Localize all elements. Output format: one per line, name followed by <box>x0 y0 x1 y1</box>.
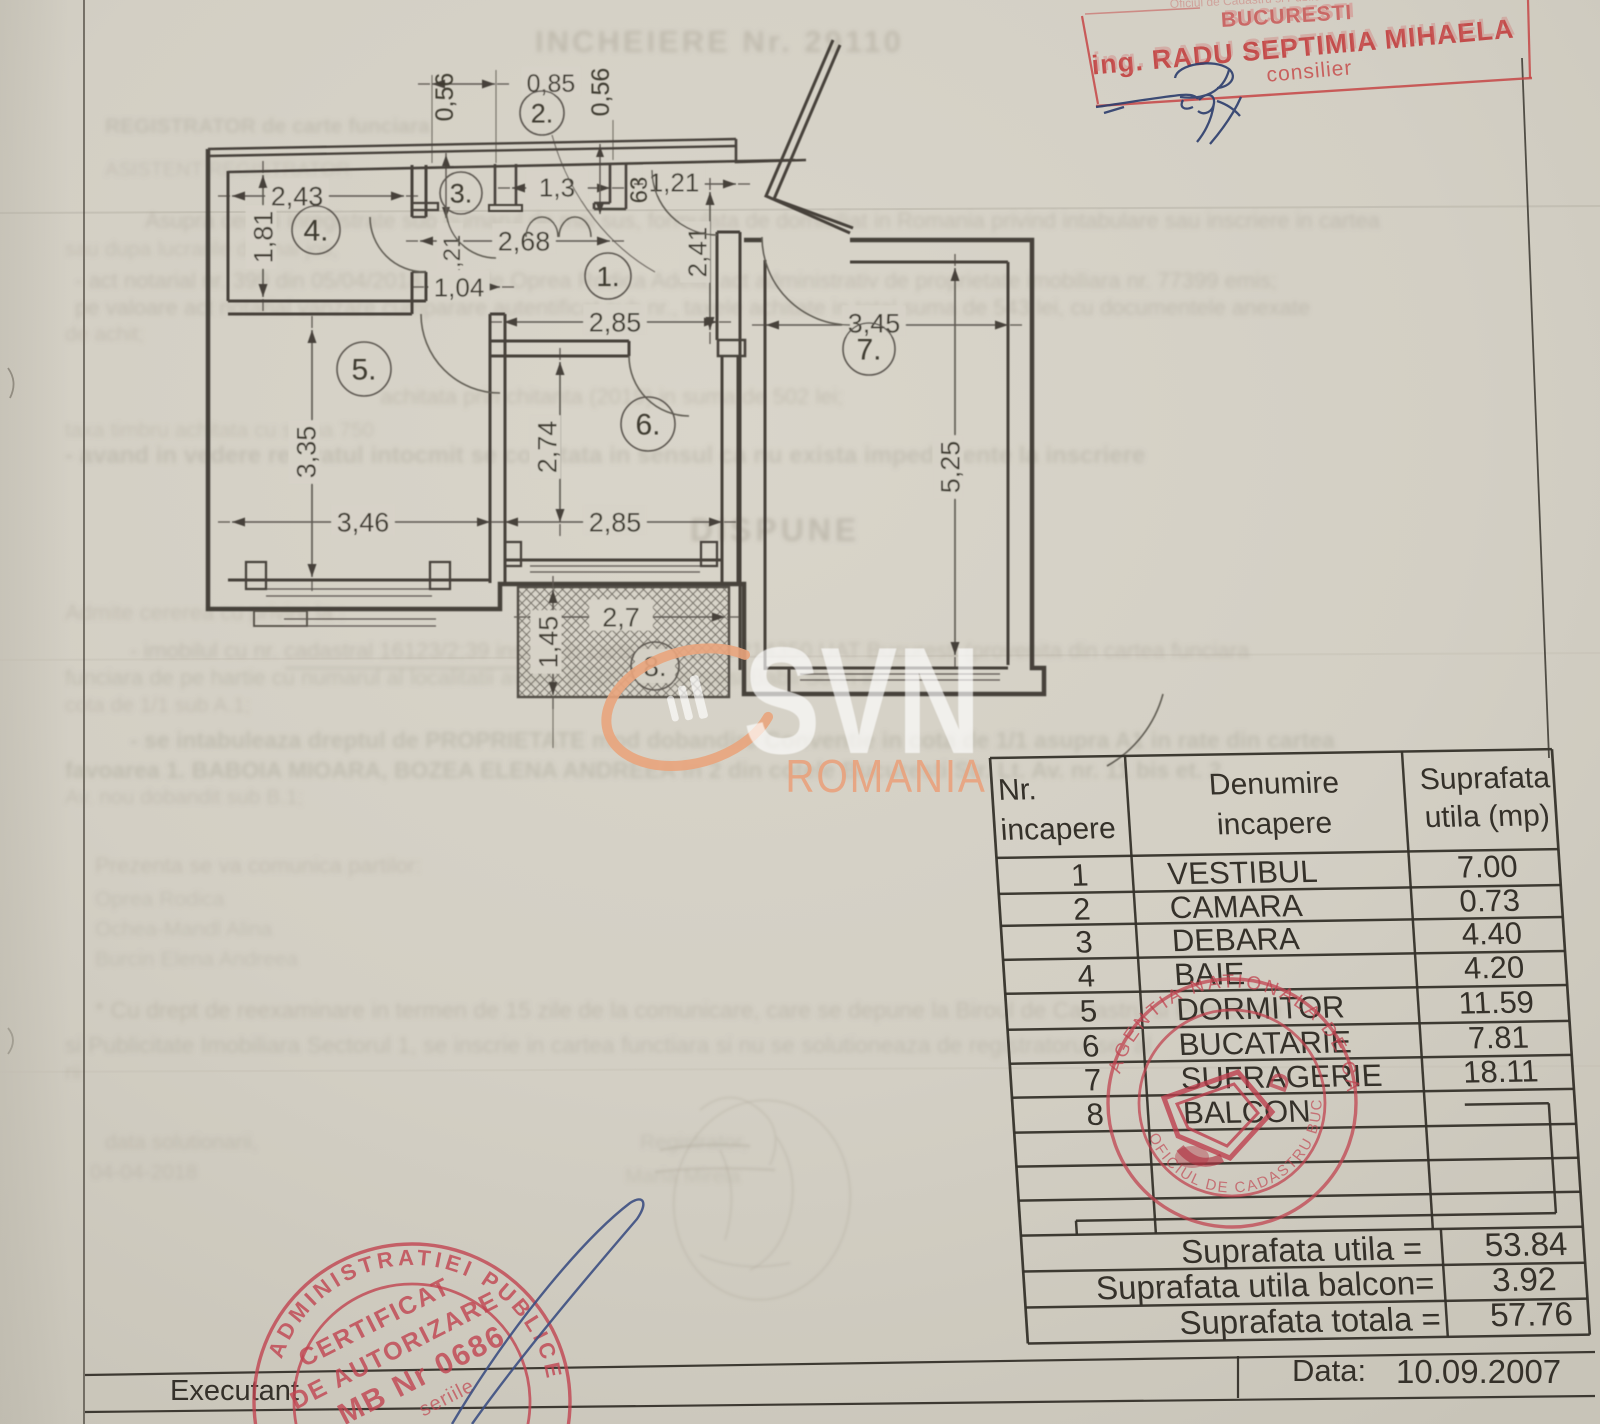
svg-text:0.73: 0.73 <box>1458 883 1521 919</box>
svg-text:3: 3 <box>1074 924 1093 959</box>
svg-text:6.: 6. <box>635 409 660 442</box>
svg-text:de achit;: de achit; <box>65 323 144 346</box>
svg-text:5.: 5. <box>351 354 376 387</box>
svg-text:DEBARA: DEBARA <box>1171 921 1301 958</box>
svg-text:Denumire: Denumire <box>1208 767 1340 802</box>
svg-text:2.: 2. <box>531 98 554 128</box>
svg-text:REGISTRATOR de carte funciara: REGISTRATOR de carte funciara <box>105 115 430 138</box>
svg-text:- avand in vedere referatul in: - avand in vedere referatul intocmit se … <box>65 442 1145 469</box>
svg-text:pe valoare act notarial vanzar: pe valoare act notarial vanzare cumparar… <box>75 295 1310 320</box>
svg-text:incapere: incapere <box>1000 812 1117 847</box>
svg-text:1,45: 1,45 <box>534 616 564 669</box>
svg-text:Suprafata: Suprafata <box>1419 761 1551 796</box>
svg-text:si Publicitate Imobiliara Sect: si Publicitate Imobiliara Sectorul 1, se… <box>65 1032 1152 1058</box>
svg-text:achitata prin chitanta (2019): achitata prin chitanta (2019) in suma de… <box>380 384 844 409</box>
svg-text:INCHEIERE Nr. 29110: INCHEIERE Nr. 29110 <box>535 24 904 59</box>
svg-text:Prezenta se va comunica partil: Prezenta se va comunica partilor: <box>95 853 422 878</box>
svg-text:2,85: 2,85 <box>589 308 642 338</box>
svg-text:Av. nou dobandit sub B.1;: Av. nou dobandit sub B.1; <box>65 786 304 809</box>
svg-text:7: 7 <box>1083 1062 1102 1097</box>
svg-text:2,85: 2,85 <box>589 508 642 538</box>
svg-text:Registrator,: Registrator, <box>640 1131 747 1154</box>
svg-text:7.: 7. <box>856 334 881 367</box>
svg-text:0,56: 0,56 <box>587 68 615 117</box>
svg-text:04-04-2018: 04-04-2018 <box>90 1161 197 1184</box>
svg-text:sau dupa lucrarile de mai jos,: sau dupa lucrarile de mai jos, <box>65 238 338 261</box>
svg-text:7.81: 7.81 <box>1467 1020 1530 1056</box>
svg-text:7.00: 7.00 <box>1456 849 1519 885</box>
svg-text:Suprafata totala =: Suprafata totala = <box>1178 1300 1442 1341</box>
svg-text:2,68: 2,68 <box>498 227 551 257</box>
svg-text:5,25: 5,25 <box>936 441 966 494</box>
svg-text:incapere: incapere <box>1216 807 1333 842</box>
svg-text:57.76: 57.76 <box>1489 1295 1574 1333</box>
svg-text:0,56: 0,56 <box>431 73 459 122</box>
svg-text:1: 1 <box>1070 858 1089 893</box>
svg-text:CAMARA: CAMARA <box>1169 888 1304 925</box>
svg-text:1,04: 1,04 <box>434 272 485 302</box>
svg-text:Oprea Rodica: Oprea Rodica <box>95 888 225 911</box>
svg-text:1.: 1. <box>596 261 619 292</box>
svg-text:ROMANIA: ROMANIA <box>785 752 986 803</box>
svg-text:4.: 4. <box>303 215 328 248</box>
svg-text:10.09.2007: 10.09.2007 <box>1396 1353 1561 1390</box>
svg-text:2,7: 2,7 <box>602 603 640 633</box>
svg-text:1,3: 1,3 <box>539 172 575 202</box>
svg-text:Nr.: Nr. <box>997 773 1037 807</box>
svg-text:* Cu drept de reexaminare in t: * Cu drept de reexaminare in termen de 1… <box>95 997 1281 1023</box>
svg-text:8: 8 <box>1085 1097 1104 1132</box>
svg-text:53.84: 53.84 <box>1483 1225 1568 1263</box>
svg-text:3,35: 3,35 <box>292 426 322 479</box>
svg-text:4.40: 4.40 <box>1461 916 1524 952</box>
svg-text:2,74: 2,74 <box>533 421 563 474</box>
svg-text:3,46: 3,46 <box>337 508 390 538</box>
svg-text:2,43: 2,43 <box>271 182 324 212</box>
svg-text:Executant: Executant <box>170 1375 299 1407</box>
svg-text:3.: 3. <box>450 178 473 208</box>
svg-text:- act notarial nr. 399 din 05/: - act notarial nr. 399 din 05/04/2018 em… <box>75 268 1277 293</box>
svg-text:Burcin Elena Andreea: Burcin Elena Andreea <box>95 948 298 971</box>
svg-text:Ochea-Mandl Alina: Ochea-Mandl Alina <box>95 918 273 941</box>
svg-text:Admite cererea cu privire la :: Admite cererea cu privire la : <box>65 600 345 625</box>
svg-text:4: 4 <box>1076 958 1095 993</box>
svg-text:63: 63 <box>626 177 653 204</box>
svg-text:rii: rii <box>65 1061 81 1084</box>
svg-text:VESTIBUL: VESTIBUL <box>1167 854 1319 891</box>
svg-text:11.59: 11.59 <box>1458 985 1535 1021</box>
svg-text:data solutionarii,: data solutionarii, <box>105 1131 258 1154</box>
svg-text:18.11: 18.11 <box>1462 1053 1539 1089</box>
svg-text:4.20: 4.20 <box>1463 950 1526 986</box>
svg-text:cota de 1/1 sub A.1;: cota de 1/1 sub A.1; <box>65 694 251 717</box>
svg-text:2: 2 <box>1072 891 1091 926</box>
svg-text:taxa timbru achitata cu suma 7: taxa timbru achitata cu suma 750 <box>65 419 374 442</box>
svg-text:5: 5 <box>1079 993 1098 1028</box>
svg-text:3.92: 3.92 <box>1491 1260 1558 1298</box>
svg-text:Data:: Data: <box>1292 1353 1366 1388</box>
svg-text:utila (mp): utila (mp) <box>1424 799 1551 834</box>
svg-text:1,81: 1,81 <box>249 211 279 264</box>
svg-text:6: 6 <box>1081 1028 1100 1063</box>
